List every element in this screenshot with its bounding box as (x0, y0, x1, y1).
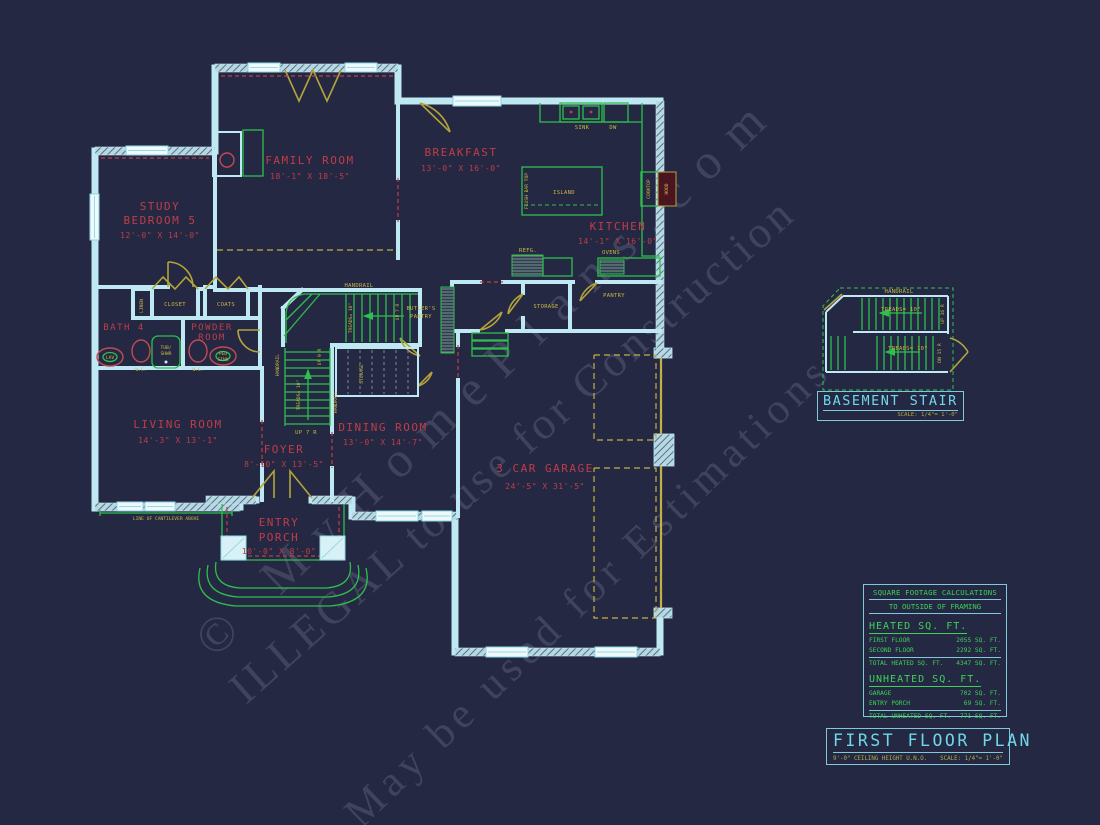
fireplace-flue (220, 153, 234, 167)
row-value: 771 SQ. FT. (960, 713, 1001, 720)
divider (869, 710, 1001, 711)
label-flush-bar-top: FLUSH BAR TOP (524, 173, 530, 209)
label-butlers2: PANTRY (410, 314, 432, 320)
bs-label-treads-upper: TREADS= 10" (881, 307, 921, 313)
label-closet: CLOSET (164, 302, 186, 308)
label-up7r-lower: UP 7 R (295, 430, 317, 436)
label-ovens: OVENS (602, 250, 620, 256)
room-label-powder2: ROOM (198, 333, 226, 343)
sqft-table: SQUARE FOOTAGE CALCULATIONS TO OUTSIDE O… (863, 584, 1007, 717)
ovens (600, 260, 624, 274)
porch-step (216, 562, 351, 588)
label-handrail-lower: HANDRAIL (333, 391, 339, 413)
bs-label-treads-lower: TREADS= 10" (888, 346, 928, 352)
toilet (189, 340, 207, 362)
french-door-family (285, 70, 341, 101)
label-lav: LAV (106, 355, 115, 361)
butlers-counter (441, 287, 454, 353)
drawing-scale: SCALE: 1/4"= 1'-0" (940, 756, 1003, 762)
basement-stair-title-block: BASEMENT STAIR SCALE: 1/4"= 1'-0" (817, 391, 964, 421)
label-refg: REFG. (519, 248, 537, 254)
label-island: ISLAND (553, 190, 575, 196)
table-row-total: TOTAL HEATED SQ. FT. 4347 SQ. FT. (869, 660, 1001, 667)
table-row: GARAGE 702 SQ. FT. (869, 690, 1001, 697)
bs-label-handrail: HANDRAIL (885, 289, 914, 295)
table-row: SECOND FLOOR 2292 SQ. FT. (869, 647, 1001, 654)
room-dims-study: 12'-0" X 14'-0" (120, 231, 200, 240)
room-dims-family: 18'-1" X 18'-5" (270, 172, 350, 181)
label-storage: STORAGE (533, 304, 558, 310)
door-powder (238, 330, 260, 352)
room-label-breakfast: BREAKFAST (424, 146, 497, 159)
label-wc2: W.C. (192, 367, 203, 373)
room-label-foyer: FOYER (264, 443, 305, 456)
toilet (132, 340, 150, 362)
basement-stair-detail (823, 288, 968, 390)
door-pantry (580, 283, 597, 301)
row-label: TOTAL UNHEATED SQ. FT. (869, 713, 951, 720)
room-label-study2: BEDROOM 5 (123, 214, 196, 227)
label-treads-lower: TREADS= 10" (296, 380, 302, 410)
garage-pier (654, 348, 672, 358)
sqft-unheated-header: UNHEATED SQ. FT. (869, 674, 981, 687)
bs-label-dn15r: DN 15 R (937, 343, 943, 363)
table-row-total: TOTAL UNHEATED SQ. FT. 771 SQ. FT. (869, 713, 1001, 720)
label-handrail-left: HANDRAIL (275, 354, 281, 376)
garage-details (594, 355, 656, 618)
label-up7r-upper: UP 7 R (395, 303, 401, 320)
label-cooktop: COOKTOP (646, 179, 652, 199)
sqft-title: SQUARE FOOTAGE CALCULATIONS (869, 588, 1001, 600)
sqft-subtitle: TO OUTSIDE OF FRAMING (869, 600, 1001, 614)
row-value: 702 SQ. FT. (960, 690, 1001, 697)
row-label: SECOND FLOOR (869, 647, 914, 654)
room-dims-garage: 24'-5" X 31'-5" (505, 482, 585, 491)
basement-stair-labels: HANDRAIL TREADS= 10" UP 16 R TREADS= 10"… (881, 289, 946, 363)
room-label-living: LIVING ROOM (133, 418, 222, 431)
label-pantry: PANTRY (603, 293, 625, 299)
page-title: FIRST FLOOR PLAN (833, 731, 1003, 753)
floor-plan-sheet: © MyHomePlans.com ILLEGAL to use for Con… (0, 0, 1100, 825)
row-value: 2055 SQ. FT. (956, 637, 1001, 644)
bs-label-up16r: UP 16 R (940, 304, 946, 324)
room-labels: STUDY BEDROOM 5 12'-0" X 14'-0" FAMILY R… (103, 146, 658, 556)
garage-step (472, 341, 508, 348)
label-storage-under-stair: STORAGE (359, 364, 365, 384)
room-label-bath4: BATH 4 (103, 323, 145, 333)
room-label-porch: ENTRY (259, 516, 300, 529)
room-dims-kitchen: 14'-1" X 16'-0" (578, 237, 658, 246)
garage-step (472, 349, 508, 356)
room-dims-dining: 13'-0" X 14'-7" (343, 438, 423, 447)
label-ped2: SINK (217, 357, 228, 363)
row-value: 4347 SQ. FT. (956, 660, 1001, 667)
label-linen: LINEN (139, 299, 145, 313)
label-tub2: SHWR (160, 351, 171, 357)
room-label-powder: POWDER (191, 323, 233, 333)
garage-step (472, 333, 508, 340)
row-label: ENTRY PORCH (869, 700, 910, 707)
title-block: FIRST FLOOR PLAN 9'-0" CEILING HEIGHT U.… (826, 728, 1010, 765)
sqft-heated-header: HEATED SQ. FT. (869, 621, 967, 634)
garage-pier (654, 434, 674, 466)
row-label: GARAGE (869, 690, 891, 697)
row-label: FIRST FLOOR (869, 637, 910, 644)
label-hood: HOOD (664, 183, 670, 194)
label-sink: SINK (575, 125, 590, 131)
porch-step (207, 565, 359, 597)
label-handrail-top: HANDRAIL (345, 283, 374, 289)
label-dw: DW (609, 125, 617, 131)
room-label-porch2: PORCH (259, 531, 300, 544)
row-value: 69 SQ. FT. (964, 700, 1001, 707)
room-label-family: FAMILY ROOM (265, 154, 354, 167)
room-dims-breakfast: 13'-0" X 16'-0" (421, 164, 501, 173)
label-coats: COATS (217, 302, 235, 308)
basement-stair-scale: SCALE: 1/4"= 1'-0" (823, 411, 958, 418)
label-wc1: W.C. (135, 367, 146, 373)
door-storage (508, 294, 523, 314)
ceiling-height-note: 9'-0" CEILING HEIGHT U.N.O. (833, 756, 927, 762)
label-cantilever: LINE OF CANTILEVER ABOVE (133, 516, 200, 522)
room-label-dining: DINING ROOM (338, 421, 427, 434)
garage-pier (654, 608, 672, 618)
label-treads-upper: TREADS= 10" (348, 303, 354, 333)
room-dims-foyer: 8'-10" X 13'-5" (244, 460, 324, 469)
table-row: FIRST FLOOR 2055 SQ. FT. (869, 637, 1001, 644)
label-tub1: TUB/ (160, 345, 171, 351)
divider (869, 657, 1001, 658)
row-value: 2292 SQ. FT. (956, 647, 1001, 654)
room-dims-porch: 10'-0" X 8'-0" (242, 547, 316, 556)
door-breakfast (420, 103, 450, 132)
room-dims-living: 14'-3" X 13'-1" (138, 436, 218, 445)
label-ped1: PED (219, 351, 228, 357)
label-butlers1: BUTLER'S (407, 306, 436, 312)
label-up9r: UP 9 R (317, 348, 323, 365)
room-label-garage: 3 CAR GARAGE (496, 462, 593, 475)
table-row: ENTRY PORCH 69 SQ. FT. (869, 700, 1001, 707)
room-label-kitchen: KITCHEN (590, 220, 647, 233)
room-label-study: STUDY (140, 200, 181, 213)
door-garage-entry (480, 312, 502, 330)
dishwasher (604, 103, 628, 122)
refrigerator (512, 255, 543, 276)
basement-stair-title: BASEMENT STAIR (823, 393, 958, 411)
row-label: TOTAL HEATED SQ. FT. (869, 660, 944, 667)
door-understair (418, 372, 432, 386)
porch-step (199, 568, 367, 606)
